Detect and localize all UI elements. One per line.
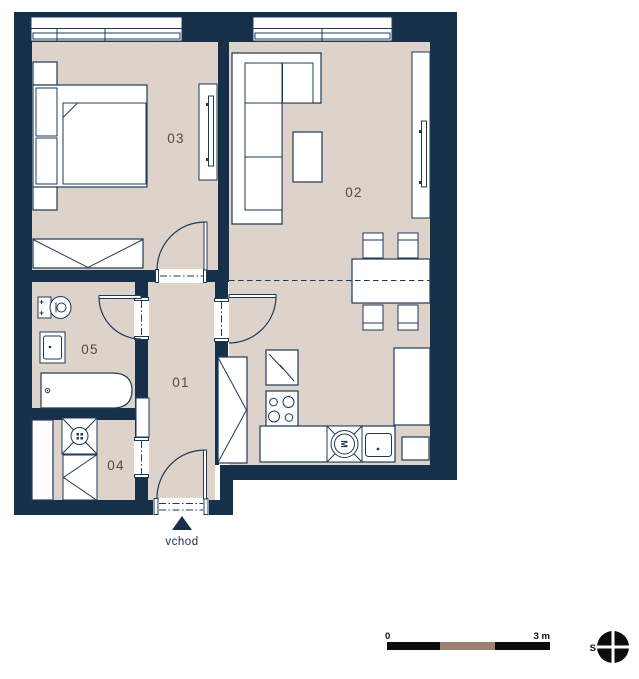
storage-door-leaf-icon bbox=[136, 398, 149, 437]
chair-icon bbox=[398, 305, 418, 330]
floor-plan-drawing: M bbox=[0, 0, 639, 679]
bed-icon bbox=[33, 85, 147, 187]
room-label-bedroom: 03 bbox=[167, 131, 184, 146]
scale-start-label: 0 bbox=[385, 631, 390, 642]
entrance-label: vchod bbox=[165, 536, 198, 548]
corner-cabinet-icon bbox=[402, 437, 429, 460]
radiator-icon bbox=[199, 84, 217, 180]
fridge-icon bbox=[266, 350, 298, 385]
floor-plan: M bbox=[0, 0, 639, 679]
room-label-bathroom: 05 bbox=[81, 342, 98, 357]
stove-icon bbox=[266, 391, 298, 426]
washing-machine-icon: M bbox=[327, 426, 362, 462]
pillow-icon bbox=[36, 138, 57, 184]
storage-door-opening bbox=[134, 437, 149, 478]
wall-left bbox=[14, 12, 32, 515]
room-label-living: 02 bbox=[345, 185, 362, 200]
radiator-icon bbox=[412, 52, 430, 218]
sink-icon bbox=[40, 332, 65, 363]
scale-segment bbox=[387, 642, 440, 650]
pillow-icon bbox=[36, 88, 57, 136]
living-door-opening bbox=[214, 298, 229, 342]
room-label-storage: 04 bbox=[107, 458, 124, 473]
washing-machine-letter: M bbox=[339, 440, 349, 448]
bedroom-door-opening bbox=[155, 269, 207, 283]
compass-north-label: S bbox=[590, 643, 596, 654]
cabinet-icon bbox=[32, 420, 53, 500]
scale-bar: 0 3 m bbox=[385, 631, 550, 650]
bathtub-icon bbox=[41, 373, 132, 408]
coffee-table-icon bbox=[293, 132, 322, 182]
washer-dryer-icon bbox=[62, 418, 97, 454]
room-label-hall: 01 bbox=[172, 375, 189, 390]
hall-wardrobe-icon bbox=[218, 357, 247, 463]
compass-icon bbox=[596, 630, 630, 664]
chair-icon bbox=[363, 233, 383, 258]
chair-icon bbox=[363, 305, 383, 330]
wall-bedroom-living bbox=[218, 42, 229, 282]
window-bedroom bbox=[31, 17, 182, 42]
entrance-marker: vchod bbox=[165, 516, 198, 548]
chair-icon bbox=[398, 233, 418, 258]
entrance-arrow-icon bbox=[172, 516, 192, 530]
compass: S bbox=[590, 630, 630, 664]
scale-segment bbox=[440, 642, 495, 650]
nightstand-icon bbox=[33, 186, 57, 210]
nightstand-icon bbox=[33, 62, 57, 85]
wardrobe-icon bbox=[63, 455, 97, 500]
scale-segment bbox=[495, 642, 550, 650]
tall-cabinet-icon bbox=[394, 348, 430, 425]
window-living bbox=[253, 17, 392, 42]
toilet-icon bbox=[38, 297, 71, 319]
wardrobe-icon bbox=[33, 239, 143, 268]
duvet-icon bbox=[63, 103, 146, 184]
bathroom-door-opening bbox=[134, 297, 149, 340]
wall-step-block bbox=[220, 465, 233, 515]
entrance-door-opening bbox=[153, 498, 209, 515]
kitchen-sink-icon bbox=[366, 434, 392, 457]
scale-end-label: 3 m bbox=[534, 631, 550, 642]
